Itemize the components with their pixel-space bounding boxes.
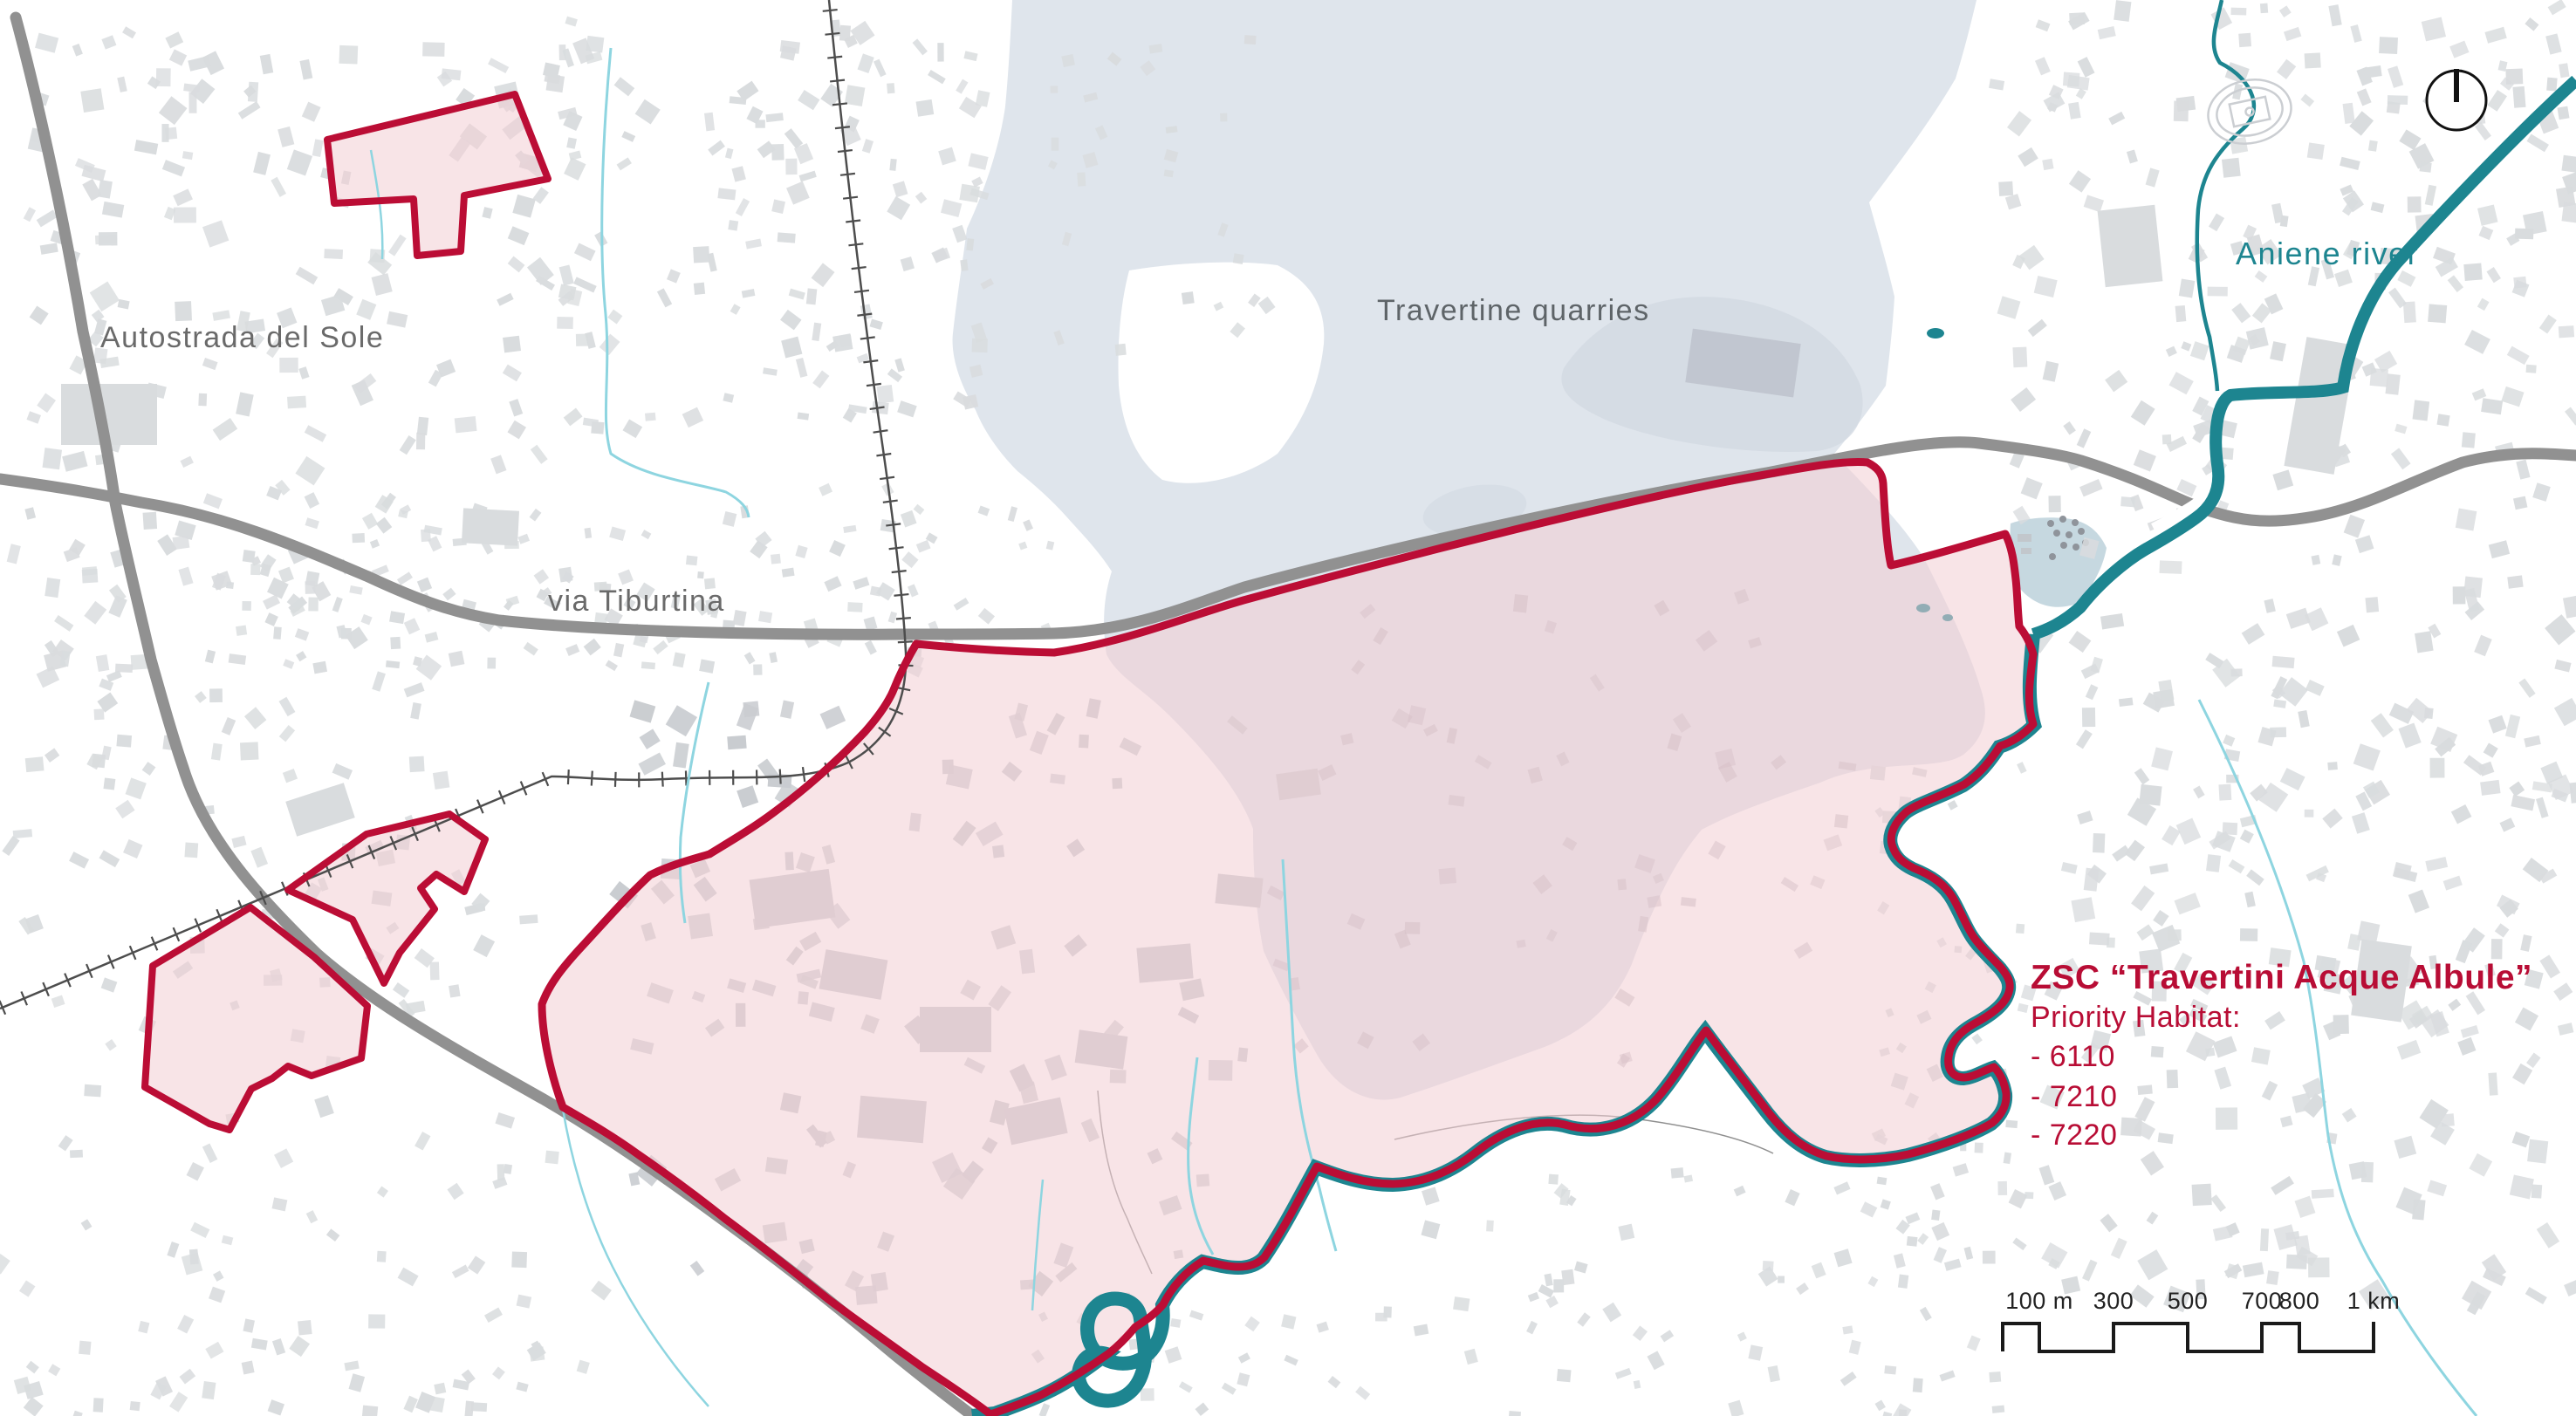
zsc-habitat-code: - 7220 bbox=[2031, 1118, 2117, 1152]
stream bbox=[2199, 700, 2477, 1416]
scale-bar-label: 500 bbox=[2168, 1288, 2209, 1314]
quarry-pond-icon bbox=[1927, 328, 1944, 339]
zsc-habitat-code: - 7210 bbox=[2031, 1080, 2117, 1113]
map-canvas: Autostrada del Sole via Tiburtina Traver… bbox=[0, 0, 2576, 1416]
pond-building bbox=[2021, 548, 2031, 554]
scale-bar: 100 m 300 500 700 800 1 km bbox=[2003, 1288, 2400, 1351]
label-travertine-quarries: Travertine quarries bbox=[1377, 294, 1650, 327]
scale-bar-label: 300 bbox=[2093, 1288, 2134, 1314]
zsc-habitat-code: - 6110 bbox=[2031, 1040, 2115, 1073]
scale-bar-line bbox=[2003, 1322, 2374, 1351]
label-via-tiburtina: via Tiburtina bbox=[548, 585, 725, 618]
north-arrow-icon bbox=[2427, 69, 2486, 130]
pond-building bbox=[2018, 534, 2031, 542]
zsc-subtitle: Priority Habitat: bbox=[2031, 1001, 2241, 1034]
scale-bar-label: 700 bbox=[2242, 1288, 2283, 1314]
scale-bar-label: 1 km bbox=[2347, 1288, 2401, 1314]
scale-bar-label: 100 m bbox=[2005, 1288, 2073, 1314]
zsc-title: ZSC “Travertini Acque Albule” bbox=[2031, 959, 2532, 996]
stadium-icon bbox=[2203, 72, 2298, 151]
map-figure: Autostrada del Sole via Tiburtina Traver… bbox=[0, 0, 2576, 1416]
aniene-river-upper bbox=[2197, 0, 2254, 391]
scale-bar-label: 800 bbox=[2279, 1288, 2320, 1314]
label-aniene-river: Aniene river bbox=[2236, 236, 2419, 271]
label-autostrada: Autostrada del Sole bbox=[100, 321, 384, 354]
